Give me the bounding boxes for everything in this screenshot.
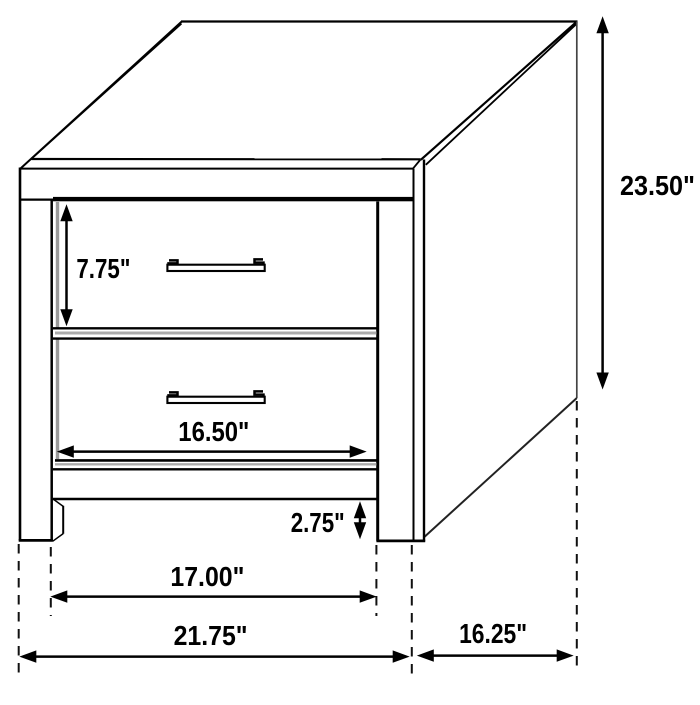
svg-text:16.25": 16.25" — [459, 618, 527, 649]
svg-text:21.75": 21.75" — [174, 620, 248, 651]
svg-text:16.50": 16.50" — [178, 416, 249, 447]
svg-text:7.75": 7.75" — [76, 253, 130, 284]
svg-text:17.00": 17.00" — [170, 561, 244, 592]
svg-text:2.75": 2.75" — [291, 507, 345, 538]
svg-text:23.50": 23.50" — [620, 170, 695, 201]
